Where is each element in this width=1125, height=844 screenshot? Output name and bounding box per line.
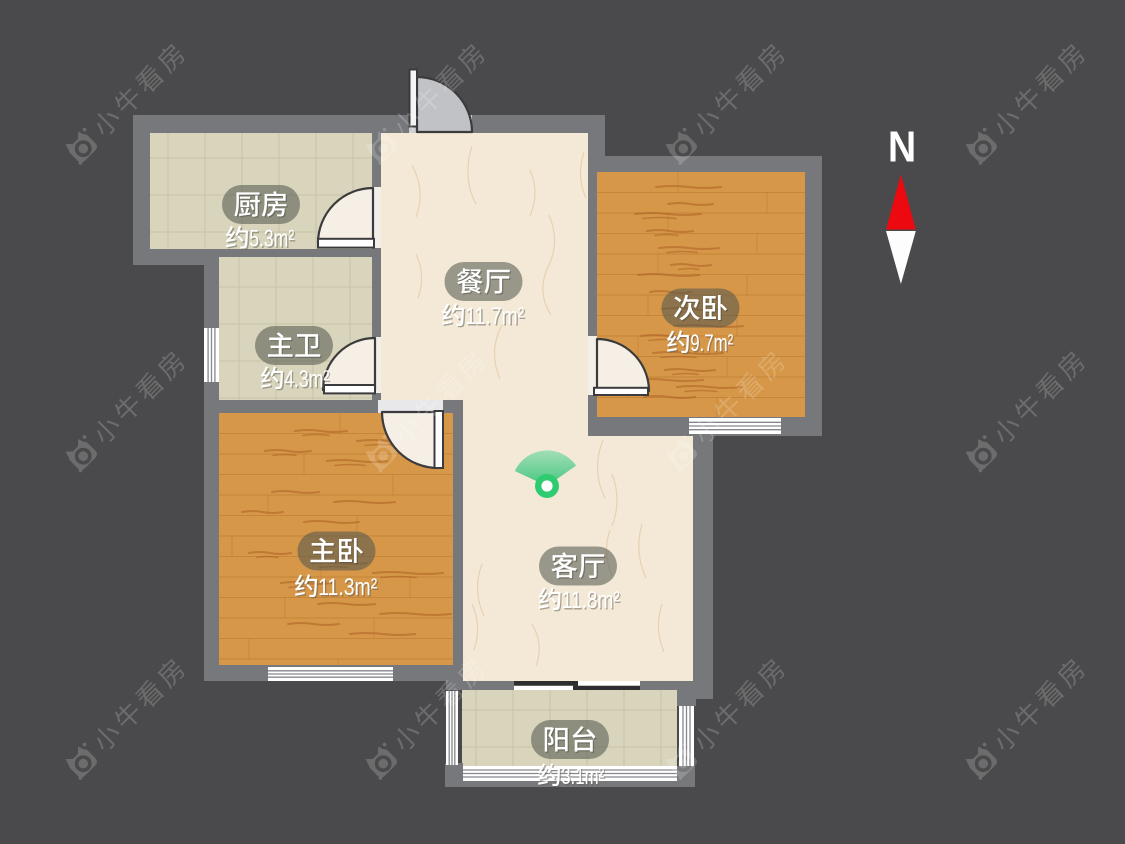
- svg-text:11.7m²: 11.7m²: [465, 303, 524, 330]
- svg-text:5.3m²: 5.3m²: [249, 226, 294, 253]
- svg-text:3.1m²: 3.1m²: [561, 763, 604, 790]
- svg-text:9.7m²: 9.7m²: [690, 330, 733, 357]
- svg-text:11.3m²: 11.3m²: [318, 574, 377, 601]
- svg-text:4.3m²: 4.3m²: [284, 366, 329, 393]
- svg-text:11.8m²: 11.8m²: [562, 587, 620, 614]
